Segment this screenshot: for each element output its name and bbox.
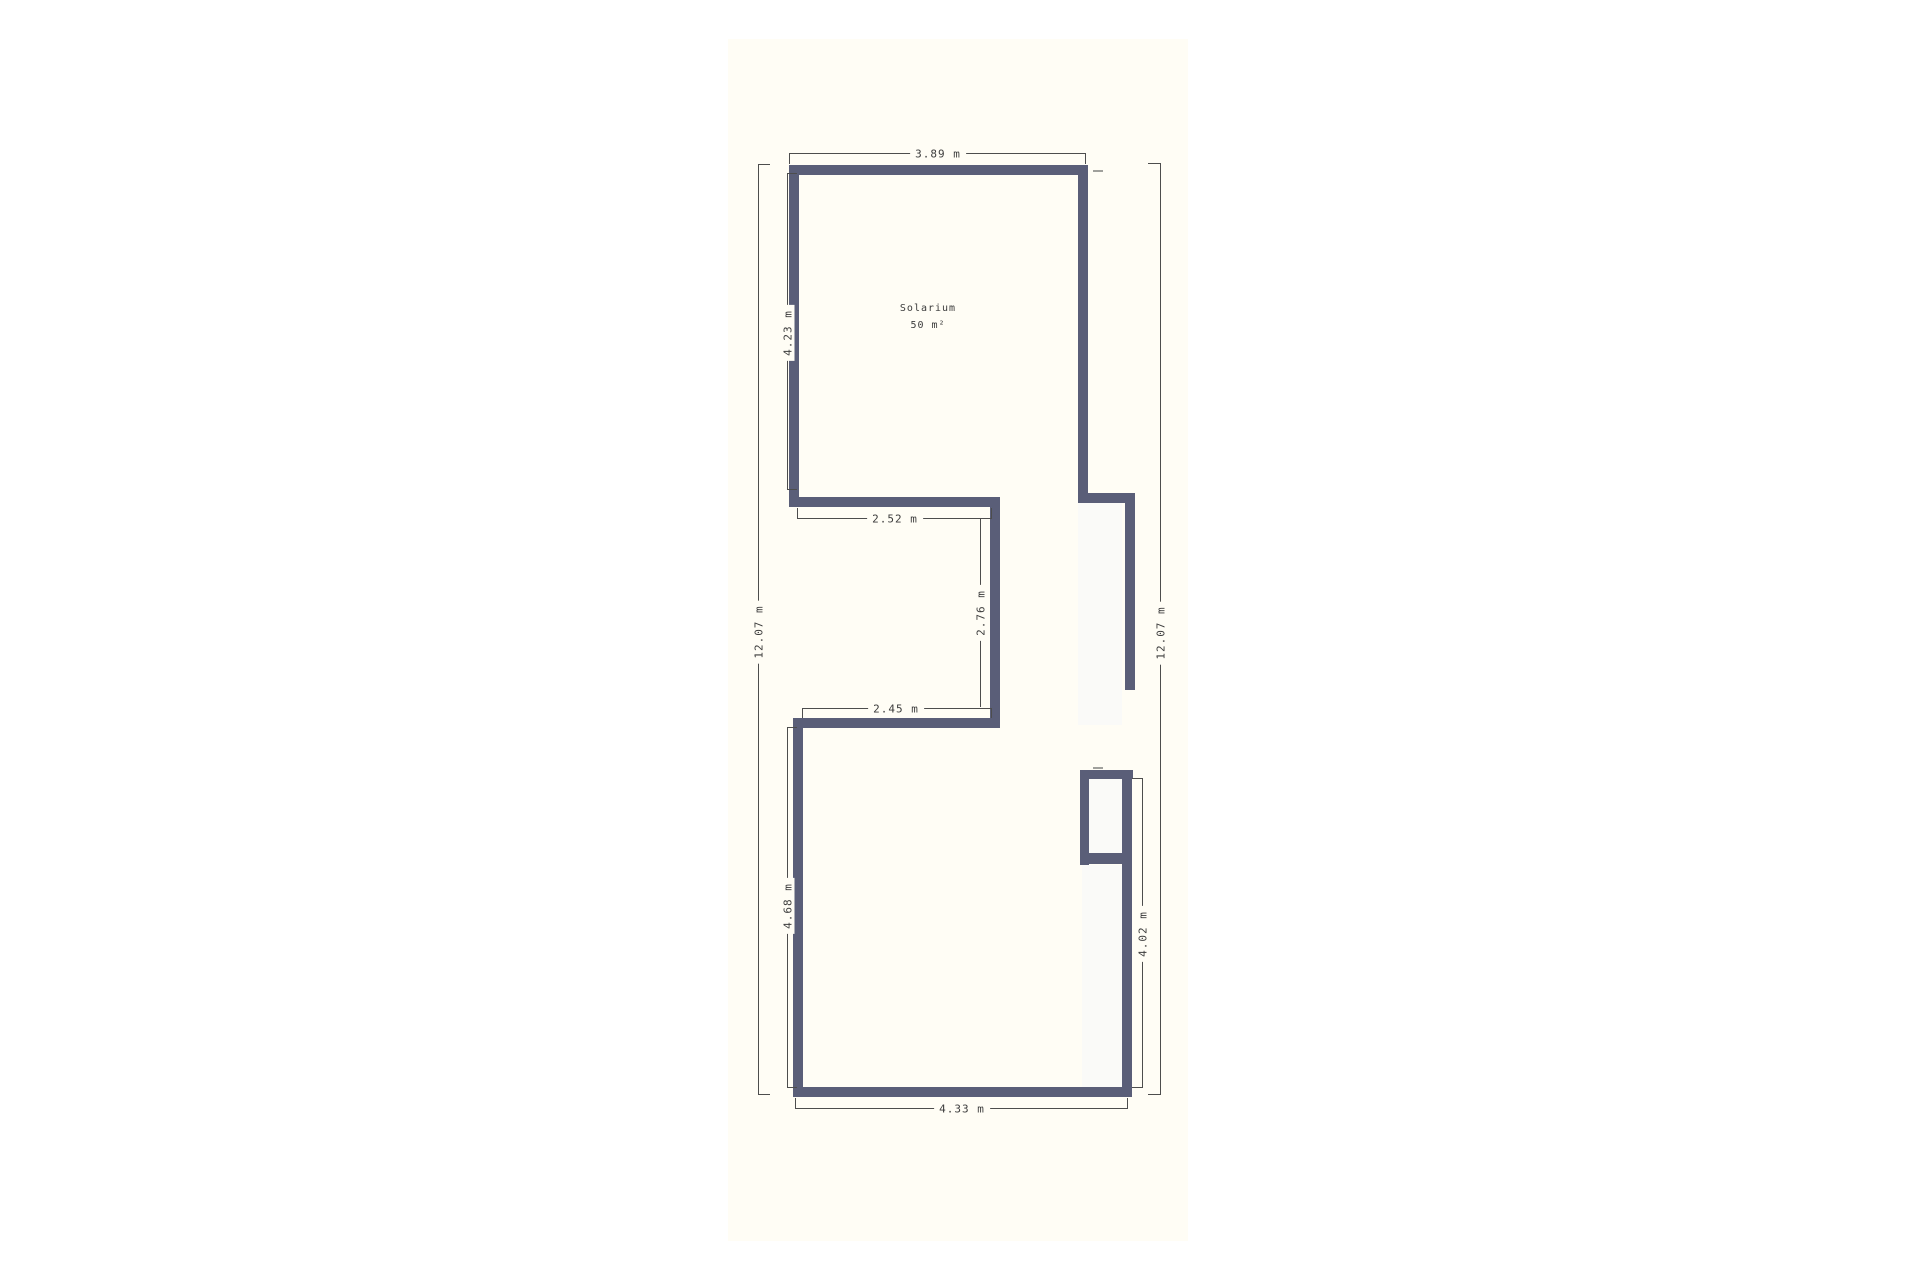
dim-label-lower-right: 4.02 m [1137, 906, 1150, 962]
dim-hook [787, 489, 797, 490]
wall-lower-right [1122, 770, 1132, 1097]
tick-shaft [1093, 767, 1103, 769]
dim-hook [1127, 1098, 1128, 1108]
wall-lower-top [793, 718, 1000, 728]
dim-label-left-inner: 4.23 m [782, 305, 795, 361]
shaft-interior [1089, 779, 1122, 853]
dim-hook [802, 708, 803, 718]
wall-lower-left [793, 718, 803, 1097]
dim-hook [797, 508, 798, 518]
light-strip-upper [1078, 503, 1122, 725]
wall-notch-right [990, 497, 1000, 728]
dim-hook [789, 153, 790, 164]
dim-hook [1148, 1094, 1160, 1095]
dim-hook [787, 173, 797, 174]
dim-hook [1132, 778, 1142, 779]
room-name: Solarium [900, 300, 956, 317]
dim-label-bottom: 4.33 m [934, 1103, 990, 1116]
wall-solarium-right [1078, 165, 1088, 503]
dim-label-lower-left: 4.68 m [782, 878, 795, 934]
light-strip-lower [1082, 865, 1122, 1087]
wall-solarium-top [789, 165, 1088, 175]
tick-upper [1093, 170, 1103, 172]
dim-label-top: 3.89 m [910, 148, 966, 161]
dim-label-left-outer: 12.07 m [753, 600, 766, 663]
wall-notch-top [789, 497, 1000, 507]
dim-label-notch-top: 2.52 m [867, 513, 923, 526]
dim-hook [1132, 1087, 1142, 1088]
dim-hook [1085, 153, 1086, 164]
dim-hook [787, 1087, 797, 1088]
room-label-solarium: Solarium 50 m² [900, 300, 956, 334]
dim-label-notch-vertical: 2.76 m [975, 585, 988, 641]
wall-spur-vertical [1125, 493, 1135, 690]
dim-label-right-outer: 12.07 m [1155, 601, 1168, 664]
dim-hook [991, 508, 992, 518]
floorplan-canvas: 3.89 m 12.07 m 4.23 m 2.52 m 2.76 m 2.45… [0, 0, 1920, 1280]
room-area: 50 m² [900, 317, 956, 334]
dim-hook [758, 1094, 770, 1095]
dim-hook [1148, 163, 1160, 164]
dim-hook [991, 708, 992, 718]
wall-shaft-left [1080, 770, 1089, 865]
dim-hook [795, 1098, 796, 1108]
dim-hook [787, 727, 797, 728]
dim-hook [758, 164, 770, 165]
wall-lower-bottom [793, 1087, 1130, 1097]
dim-label-notch-bottom: 2.45 m [868, 703, 924, 716]
wall-shaft-bottom [1080, 853, 1123, 864]
